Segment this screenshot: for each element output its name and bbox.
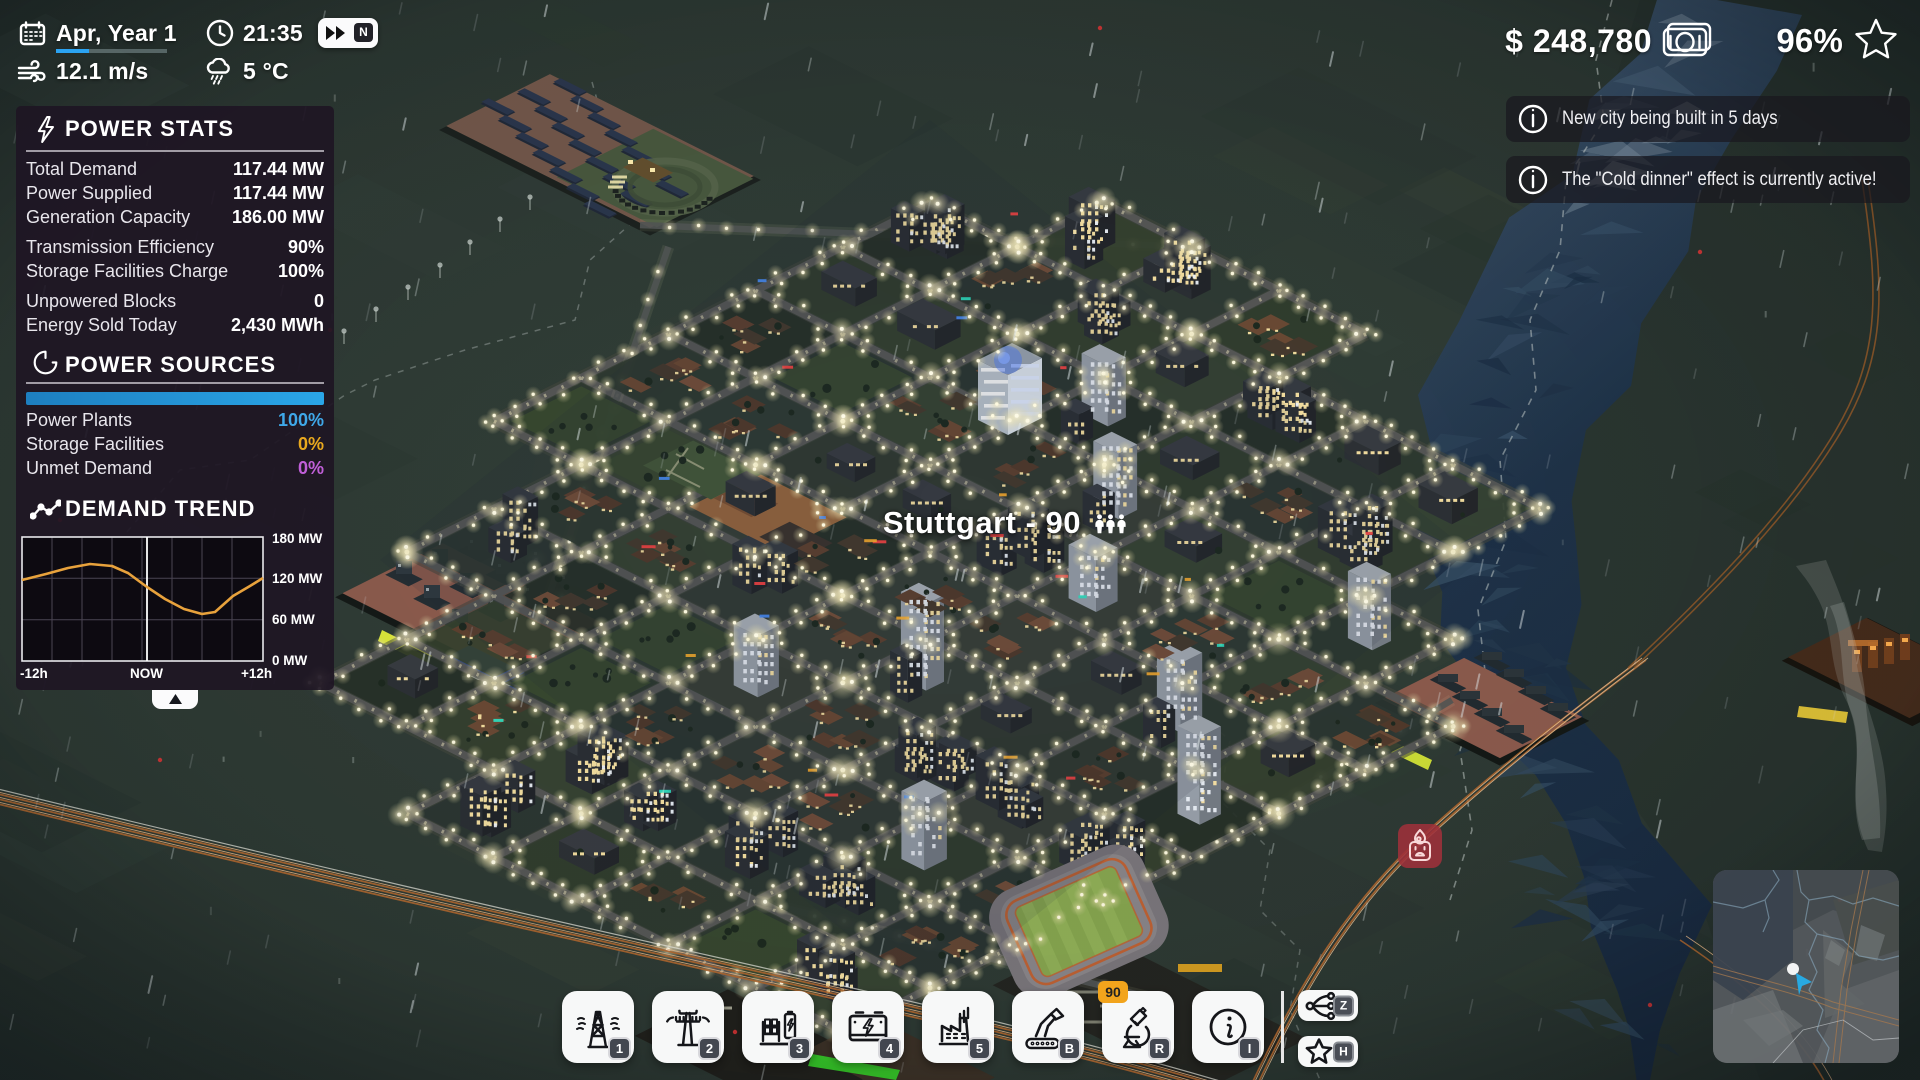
svg-text:+12h: +12h <box>241 666 272 681</box>
svg-text:0 MW: 0 MW <box>272 653 308 668</box>
svg-text:NOW: NOW <box>130 666 163 681</box>
svg-text:60 MW: 60 MW <box>272 612 315 627</box>
svg-text:120 MW: 120 MW <box>272 571 323 586</box>
svg-text:180 MW: 180 MW <box>272 531 323 546</box>
svg-text:-12h: -12h <box>20 666 48 681</box>
